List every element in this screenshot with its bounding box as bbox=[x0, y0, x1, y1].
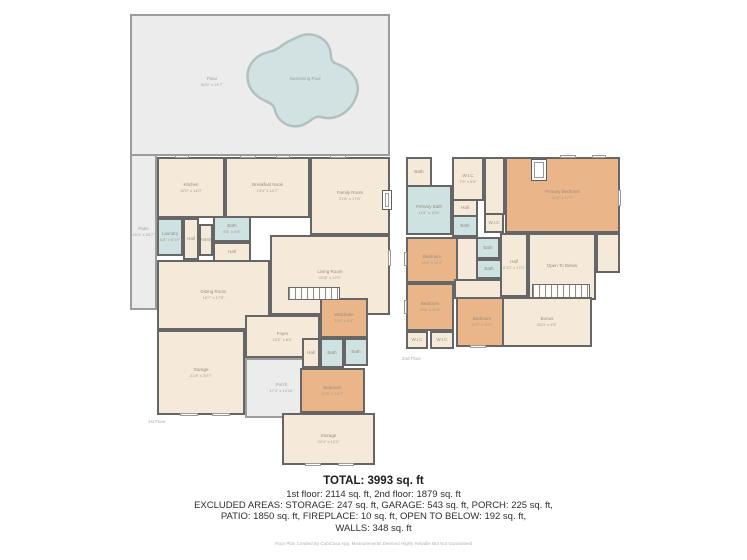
swimming-pool-label: Swimming Pool bbox=[268, 76, 342, 81]
room-closet-strip bbox=[484, 157, 505, 215]
room-hall-1: Hall bbox=[183, 218, 199, 260]
room-family-room: Family Room 21'8" x 17'8" bbox=[310, 157, 390, 235]
second-floor-caption: 2nd Floor bbox=[402, 356, 421, 361]
room-wic-1: W.I.C 7'0" x 8'8" bbox=[452, 157, 484, 201]
room-primary-bedroom: Primary Bedroom 20'0" x 17'0" bbox=[505, 157, 620, 233]
disclaimer-text: Floor Plan Created By CubiCasa App, Meas… bbox=[0, 541, 747, 546]
room-bedroom-4: Bedroom 12'0" x 12'0" bbox=[456, 297, 508, 347]
room-wardrobe: Wardrobe 11'4" x 8'6" bbox=[320, 298, 368, 338]
total-area-text: TOTAL: 3993 sq. ft bbox=[0, 475, 747, 487]
staircase-first-floor bbox=[288, 287, 340, 300]
window-marker bbox=[338, 463, 354, 466]
room-kitchen: Kitchen 16'0" x 14'0" bbox=[157, 157, 225, 218]
window-marker bbox=[470, 345, 486, 348]
room-hall-5: Hall 6'10" x 17'0" bbox=[500, 233, 528, 297]
window-marker bbox=[618, 190, 621, 206]
room-wic-4: W.I.C bbox=[430, 331, 454, 349]
room-wic-3: W.I.C bbox=[406, 331, 428, 349]
window-marker bbox=[212, 413, 230, 416]
excluded-areas-line-2: PATIO: 1850 sq. ft, FIREPLACE: 10 sq. ft… bbox=[0, 511, 747, 522]
swimming-pool-shape bbox=[236, 28, 366, 134]
fireplace-icon bbox=[382, 190, 392, 210]
room-connector-2 bbox=[454, 279, 502, 299]
room-bedroom-1: Bedroom 13'6" x 13'7" bbox=[300, 368, 365, 413]
room-bath-2: Bath bbox=[320, 338, 344, 368]
room-bonus: Bonus 26'0" x 6'8" bbox=[502, 297, 592, 347]
patio-side-strip: Patio 10'4" x 20'7" bbox=[130, 154, 157, 310]
window-marker bbox=[276, 155, 290, 158]
room-bath-1: Bath 6'8" x 5'8" bbox=[213, 216, 251, 242]
room-bath-3: Bath bbox=[344, 338, 368, 366]
window-marker bbox=[240, 155, 256, 158]
first-floor-caption: 1st Floor bbox=[148, 419, 166, 424]
floors-area-text: 1st floor: 2114 sq. ft, 2nd floor: 1879 … bbox=[0, 489, 747, 500]
room-bath-6: Bath bbox=[476, 237, 500, 259]
window-marker bbox=[175, 155, 189, 158]
room-bath-5: Bath bbox=[452, 215, 478, 237]
room-hall-2: Hall bbox=[213, 242, 251, 262]
window-marker bbox=[404, 300, 407, 314]
window-marker bbox=[560, 155, 576, 158]
area-summary: TOTAL: 3993 sq. ft 1st floor: 2114 sq. f… bbox=[0, 475, 747, 546]
room-storage: Storage 24'4" x 12'3" bbox=[282, 413, 375, 465]
room-breakfast-nook: Breakfast Nook 13'4" x 10'7" bbox=[225, 157, 310, 218]
room-bedroom-3: Bedroom 11'8" x 11'4" bbox=[406, 283, 454, 331]
window-marker bbox=[180, 413, 198, 416]
window-marker bbox=[592, 155, 606, 158]
room-pantry: Pantry bbox=[199, 224, 213, 256]
room-laundry: Laundry 6'8" x 6'10" bbox=[157, 218, 183, 256]
window-marker bbox=[404, 252, 407, 266]
room-hall-3: Hall bbox=[302, 338, 320, 368]
window-marker bbox=[305, 463, 321, 466]
room-bedroom-2: Bedroom 13'6" x 11'0" bbox=[406, 237, 458, 283]
room-garage: Garage 21'8" x 20'7" bbox=[157, 330, 245, 415]
window-marker bbox=[388, 250, 391, 266]
room-primary-bath: Primary Bath 11'8" x 10'6" bbox=[406, 185, 452, 235]
room-side-strip bbox=[596, 233, 620, 273]
patio-label: Patio 50'0" x 24'7" bbox=[180, 76, 244, 87]
excluded-areas-line-1: EXCLUDED AREAS: STORAGE: 247 sq. ft, GAR… bbox=[0, 500, 747, 511]
floor-plan-page: Patio 50'0" x 24'7" Swimming Pool Patio … bbox=[0, 0, 747, 560]
room-connector-1 bbox=[456, 237, 478, 283]
excluded-areas-line-3: WALLS: 348 sq. ft bbox=[0, 523, 747, 534]
staircase-second-floor bbox=[532, 284, 590, 298]
window-marker bbox=[330, 155, 346, 158]
room-bath-7: Bath bbox=[476, 259, 502, 279]
fireplace-icon bbox=[531, 159, 547, 181]
room-wic-2: W.I.C bbox=[484, 213, 504, 233]
room-bath-4: Bath bbox=[406, 157, 432, 187]
